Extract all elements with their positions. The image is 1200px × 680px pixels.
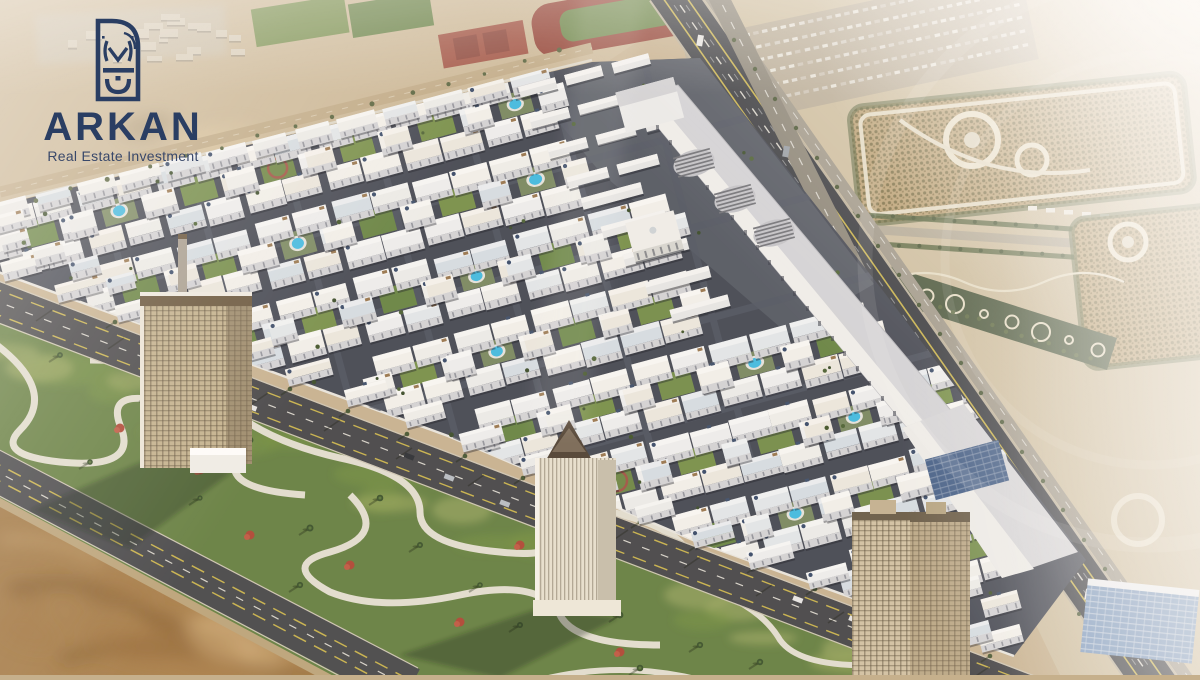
- svg-text:ARKAN: ARKAN: [43, 105, 202, 149]
- svg-text:Real Estate Investment: Real Estate Investment: [47, 148, 198, 164]
